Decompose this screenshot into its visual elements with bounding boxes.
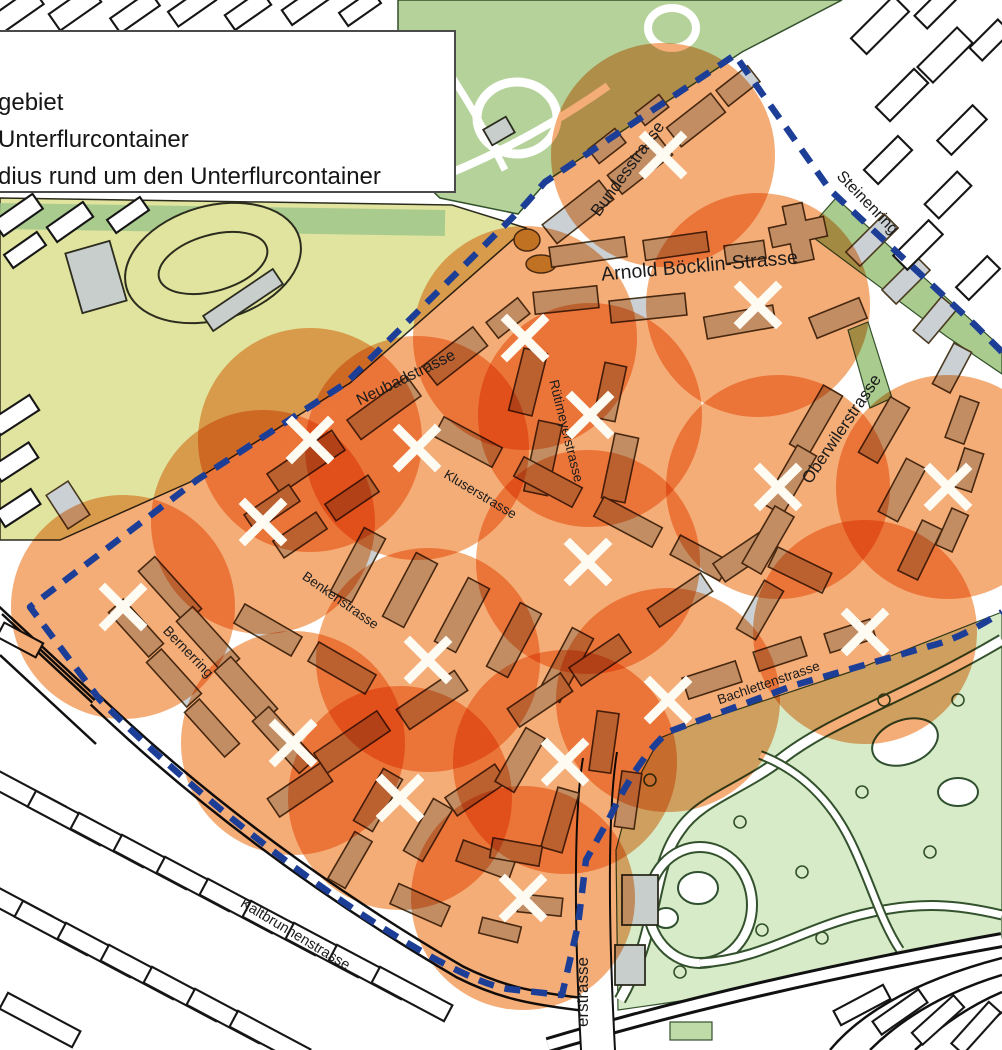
building-footprint (851, 0, 909, 54)
building-footprint (914, 0, 955, 29)
building-footprint (937, 105, 986, 154)
building-footprint (876, 69, 928, 121)
building-footprint (969, 19, 1002, 60)
street-label-kaltbrunnenstrasse: Kaltbrunnenstrasse (237, 896, 352, 974)
legend-box: gebiet Unterflurcontainer dius rund um d… (0, 30, 456, 193)
zoo-enclosure (678, 872, 718, 904)
map-stage: BundesstrasseSteinenringArnold Böcklin-S… (0, 0, 1002, 1050)
building-footprint (864, 136, 912, 184)
legend-item-pilot-area: gebiet (0, 84, 454, 121)
building-footprint (49, 0, 101, 31)
building-footprint (917, 27, 972, 82)
building-footprint (110, 0, 160, 33)
building-footprint (168, 0, 216, 27)
green-patch (670, 1022, 712, 1040)
building-footprint (225, 0, 271, 30)
legend-item-radius: dius rund um den Unterflurcontainer (0, 158, 454, 195)
street-label-erstrasse: erstrasse (573, 957, 592, 1027)
building-footprint (339, 0, 381, 26)
building-footprint (0, 993, 80, 1047)
zoo-pond (938, 778, 978, 806)
building-footprint (956, 256, 1000, 300)
building-footprint (372, 967, 453, 1021)
building-footprint (925, 172, 972, 219)
building-footprint (282, 0, 328, 25)
legend-item-container-location: Unterflurcontainer (0, 121, 454, 158)
building-footprint (230, 1011, 311, 1050)
